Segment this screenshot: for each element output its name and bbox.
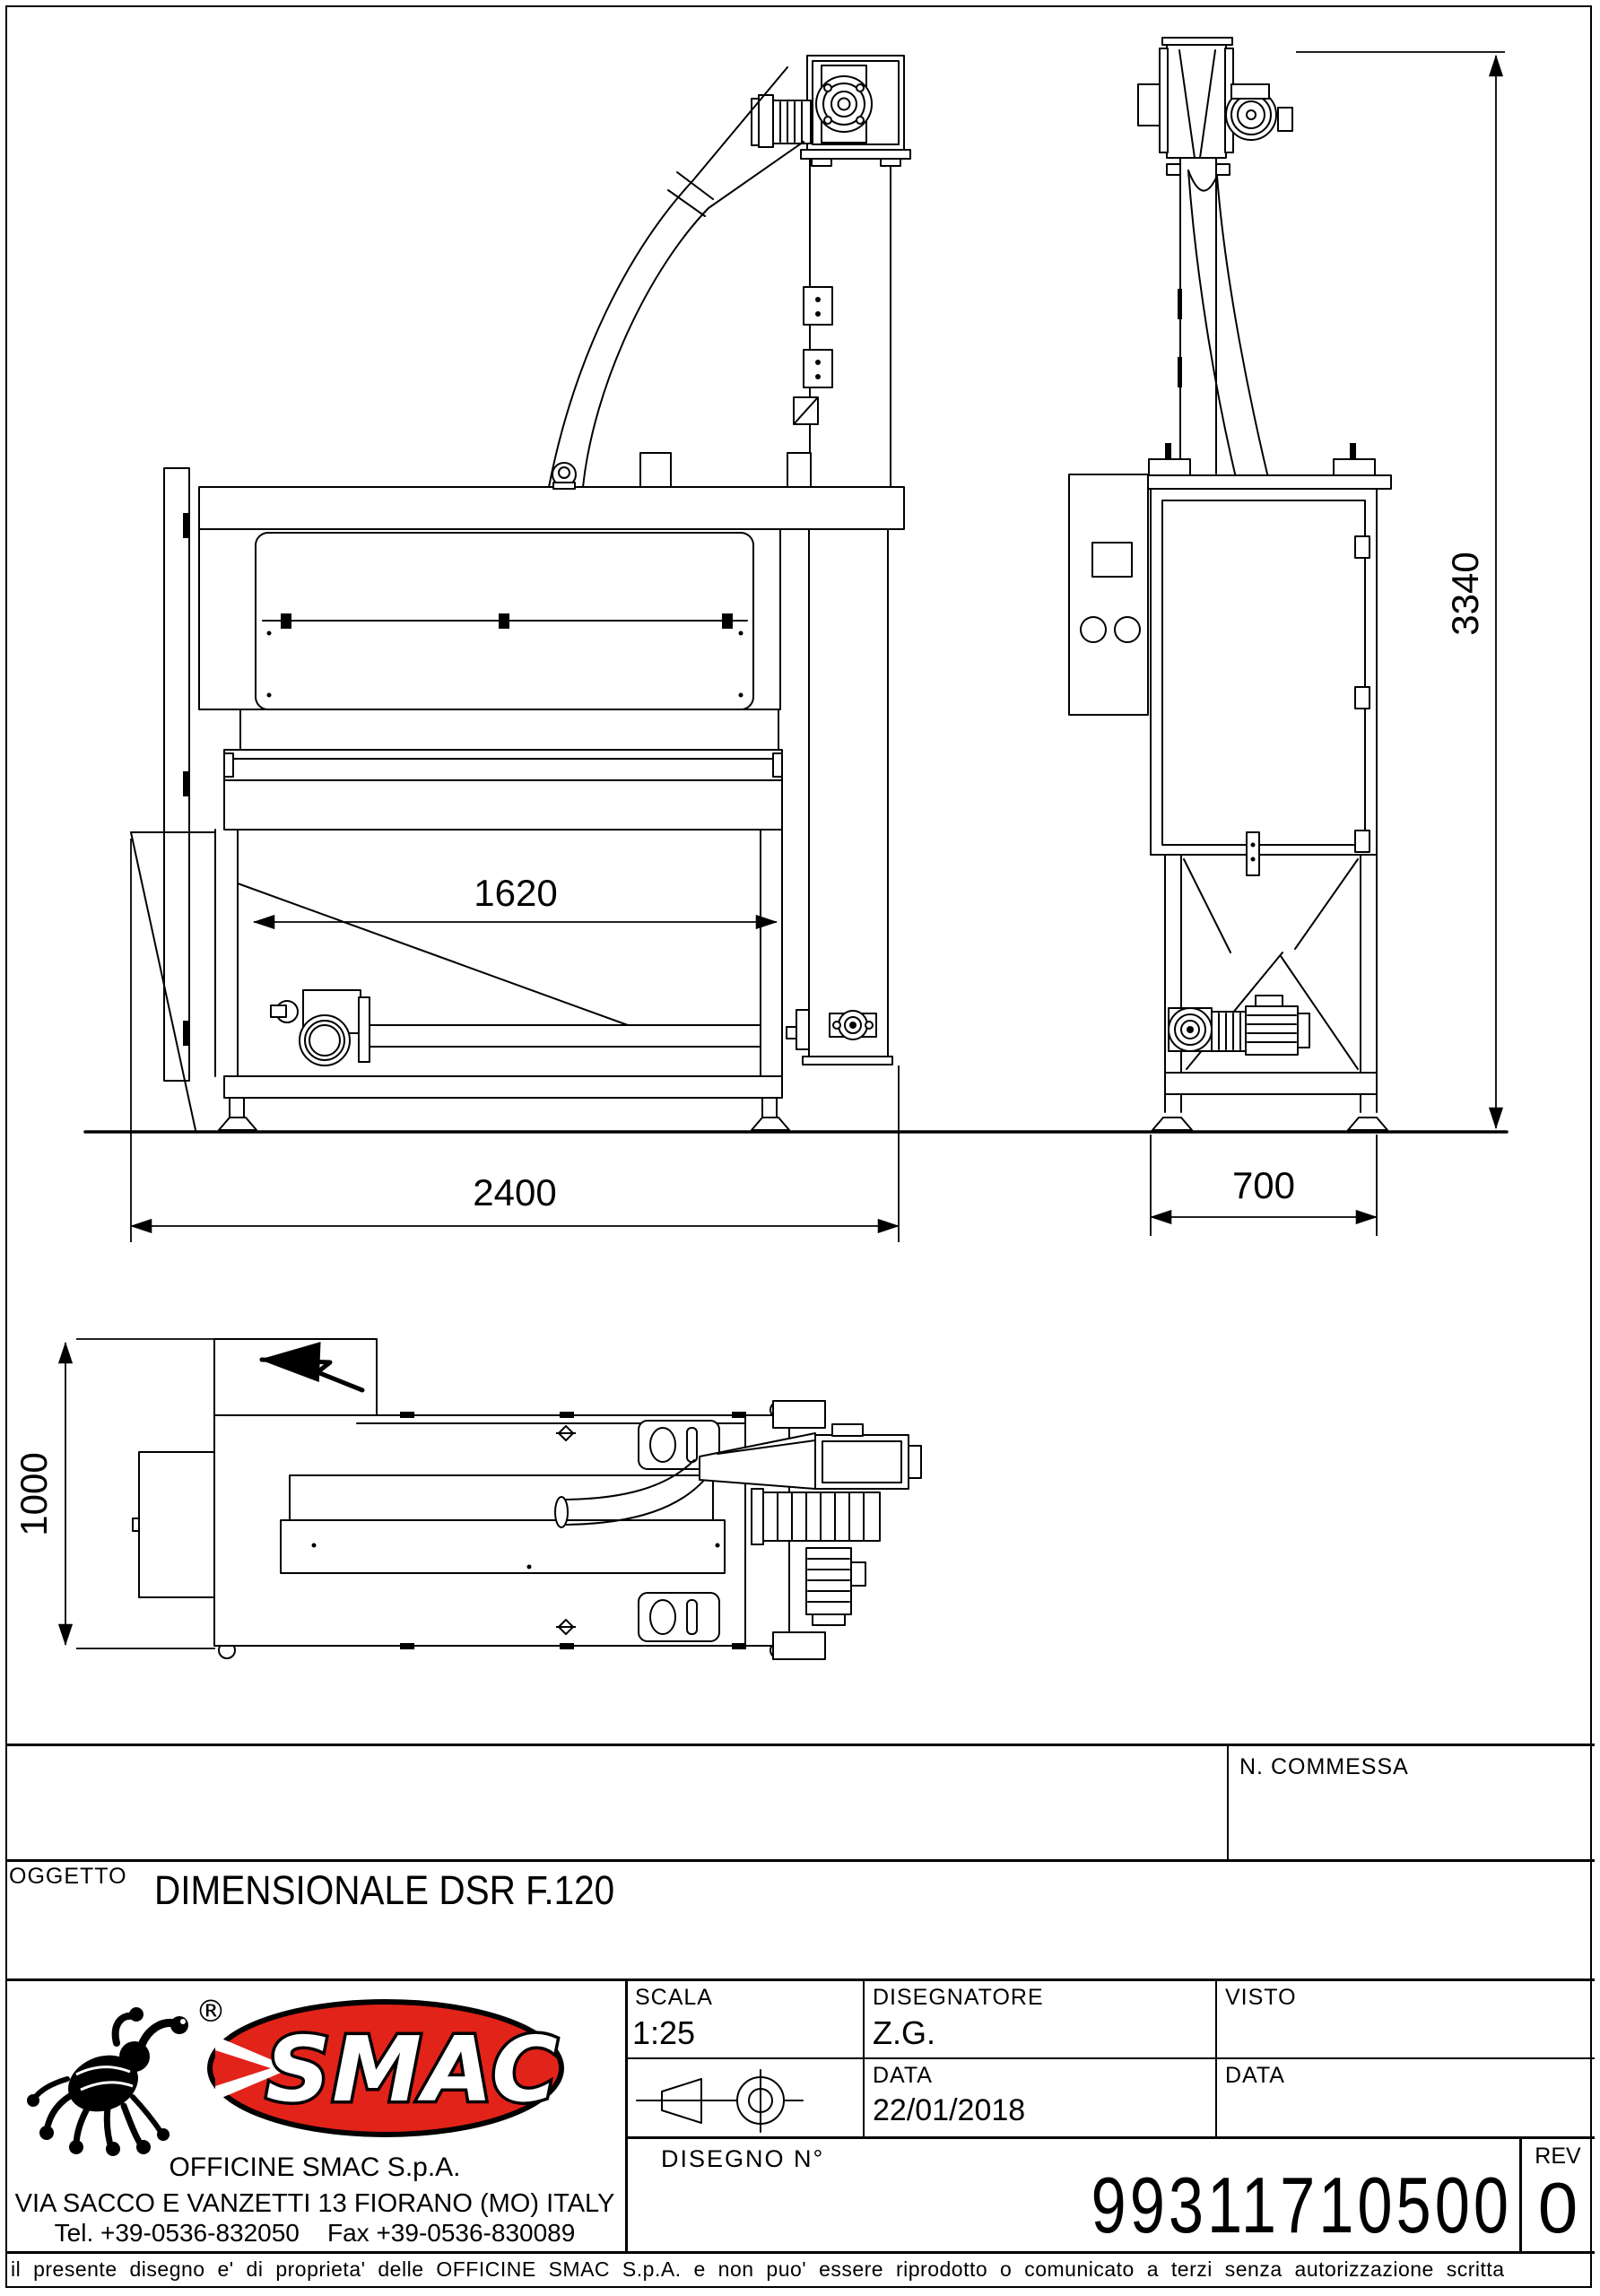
divider (5, 1744, 1595, 1746)
data-value: 22/01/2018 (873, 2093, 1025, 2128)
divider (625, 1981, 628, 2251)
disegnatore-value: Z.G. (873, 2014, 935, 2052)
smac-logo-text: SMAC (265, 2017, 559, 2122)
company-name: OFFICINE SMAC S.p.A. (5, 2152, 624, 2183)
registered-mark: ® (196, 1994, 226, 2030)
drawing-number: 99311710500 (1027, 2160, 1512, 2251)
disegno-label: DISEGNO N° (661, 2145, 824, 2173)
scala-value: 1:25 (632, 2014, 695, 2052)
first-angle-projection-icon (632, 2063, 865, 2139)
divider (5, 1979, 1595, 1981)
elevator-head-side (1138, 38, 1292, 158)
footer-disclaimer: il presente disegno e' di proprieta' del… (11, 2257, 1505, 2282)
plan-view (133, 1339, 921, 1659)
panel-display (1092, 543, 1132, 577)
data-label: DATA (873, 2063, 933, 2089)
scorpion-icon (27, 2007, 188, 2156)
drain-pump-front (271, 990, 370, 1065)
panel-button (1081, 617, 1106, 642)
company-phone: Tel. +39-0536-832050 Fax +39-0536-830089 (5, 2219, 624, 2248)
disegnatore-label: DISEGNATORE (873, 1985, 1044, 2011)
panel-button (1115, 617, 1140, 642)
drawing-area: 1620 2400 700 3340 1000 (0, 0, 1600, 1749)
dimension-overall-height: 3340 (1444, 552, 1486, 635)
control-panel (1069, 474, 1148, 715)
dimension-hopper-width: 1620 (474, 872, 557, 914)
visto-label: VISTO (1225, 1985, 1297, 2011)
feed-hose-side (1188, 170, 1271, 489)
divider (625, 2057, 1595, 2059)
front-view (131, 56, 910, 1130)
elevator-head-drive-front (752, 56, 904, 150)
lifting-eyebolt-icon (552, 463, 576, 489)
dimension-overall-width: 2400 (473, 1171, 556, 1213)
side-view (1069, 38, 1391, 1130)
divider (5, 2251, 1595, 2254)
commessa-label: N. COMMESSA (1239, 1754, 1409, 1780)
divider (1215, 1981, 1217, 2136)
drawing-title: DIMENSIONALE DSR F.120 (154, 1867, 614, 1914)
data2-label: DATA (1225, 2063, 1285, 2089)
scala-label: SCALA (635, 1985, 713, 2011)
dimension-depth: 700 (1232, 1164, 1295, 1206)
divider (1227, 1746, 1229, 1859)
dimension-plan-depth: 1000 (13, 1452, 55, 1535)
smac-logo: ® SMAC (27, 1989, 601, 2151)
divider (5, 1859, 1595, 1862)
company-address: VIA SACCO E VANZETTI 13 FIORANO (MO) ITA… (5, 2189, 624, 2219)
rev-value: 0 (1519, 2167, 1596, 2249)
smac-oval: SMAC (210, 2002, 561, 2135)
oggetto-label: OGGETTO (9, 1864, 127, 1890)
rev-label: REV (1519, 2144, 1596, 2170)
engineering-drawing-page: { "drawing": { "dimensions": { "hopper_w… (0, 0, 1600, 2296)
bucket-elevator-front (787, 150, 910, 1065)
